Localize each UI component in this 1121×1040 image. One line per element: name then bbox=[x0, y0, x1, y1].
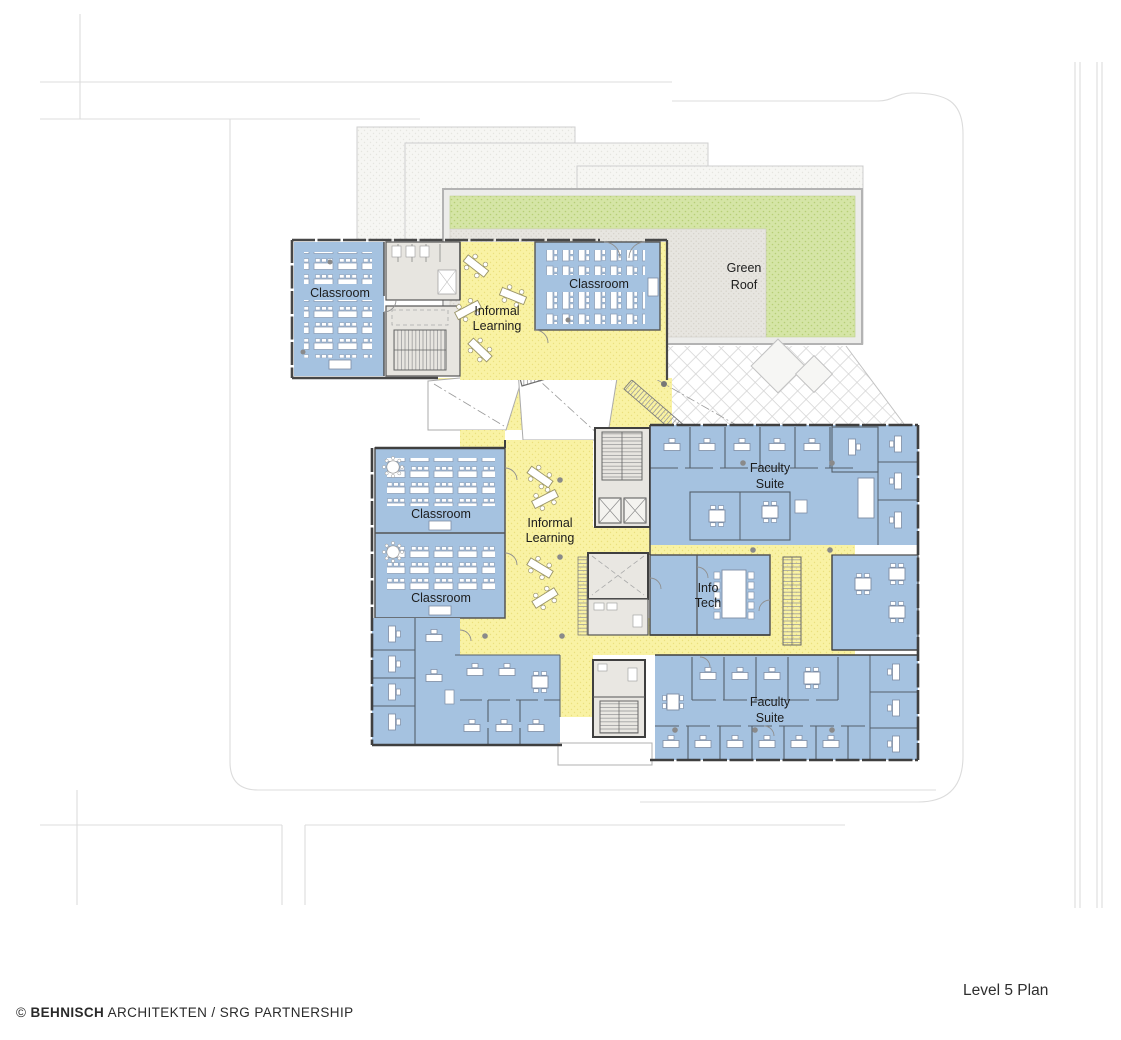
classroom-upper-left: Classroom bbox=[294, 242, 384, 376]
faculty-suite-lower: Faculty Suite bbox=[655, 655, 918, 760]
credit-rest: ARCHITEKTEN / SRG PARTNERSHIP bbox=[104, 1005, 353, 1020]
column-dot bbox=[661, 381, 667, 387]
meeting-rooms-mid-right bbox=[832, 555, 918, 650]
upper-classroom-wing: Classroom Classroom Informal Learning bbox=[292, 240, 667, 380]
floor-plan-sheet: Green Roof bbox=[0, 0, 1121, 1040]
info-tech-label-line2: Tech bbox=[695, 596, 721, 610]
green-roof-label-line2: Roof bbox=[731, 278, 758, 292]
core-mech-restroom bbox=[578, 553, 648, 635]
informal-upper-label-line1: Informal bbox=[474, 304, 519, 318]
informal-lower-label-line1: Informal bbox=[527, 516, 572, 530]
informal-lower-label-line2: Learning bbox=[526, 531, 575, 545]
credit-prefix: © bbox=[16, 1005, 31, 1020]
informal-upper-label-line2: Learning bbox=[473, 319, 522, 333]
credit-firm: BEHNISCH bbox=[31, 1005, 105, 1020]
classroom-mid-2-label: Classroom bbox=[411, 591, 471, 605]
restroom-core bbox=[386, 242, 460, 300]
corridor-stair bbox=[783, 557, 801, 645]
floor-plan-svg: Green Roof bbox=[0, 0, 1121, 1040]
faculty-upper-label-line2: Suite bbox=[756, 477, 785, 491]
faculty-upper-label-line1: Faculty bbox=[750, 461, 791, 475]
info-tech-label-line1: Info bbox=[698, 581, 719, 595]
elevator-icon bbox=[624, 498, 646, 523]
green-roof-label-line1: Green bbox=[727, 261, 762, 275]
classroom-mid-1-label: Classroom bbox=[411, 507, 471, 521]
main-lower-block: Classroom Classroom Informal Learning bbox=[372, 425, 918, 765]
classrooms-mid: Classroom Classroom bbox=[375, 448, 505, 618]
faculty-suite-upper: Faculty Suite bbox=[650, 425, 918, 545]
loading-apron bbox=[558, 743, 652, 765]
classroom-upper-right-label: Classroom bbox=[569, 277, 629, 291]
faculty-lower-label-line2: Suite bbox=[756, 711, 785, 725]
faculty-lower-label-line1: Faculty bbox=[750, 695, 791, 709]
classroom-upper-right: Classroom bbox=[535, 242, 660, 330]
info-tech-room: Info Tech bbox=[650, 555, 770, 635]
plan-title: Level 5 Plan bbox=[963, 982, 1048, 1000]
elevator-icon bbox=[599, 498, 621, 523]
core-stair-elevators bbox=[595, 428, 650, 527]
stair-core-upper-wing bbox=[386, 306, 460, 376]
copyright-credit: © BEHNISCH ARCHITEKTEN / SRG PARTNERSHIP bbox=[16, 1005, 354, 1020]
classroom-upper-left-label: Classroom bbox=[310, 286, 370, 300]
